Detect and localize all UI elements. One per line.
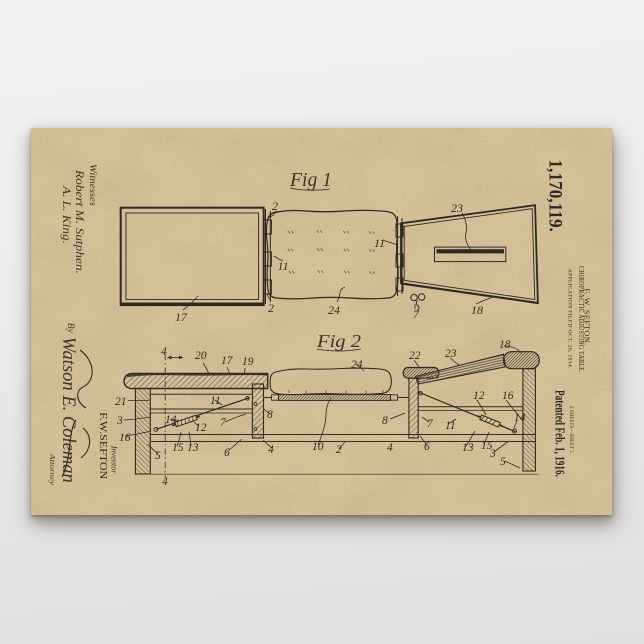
svg-text:20: 20	[195, 350, 207, 362]
svg-text:6: 6	[224, 447, 230, 459]
svg-text:3: 3	[116, 415, 123, 427]
svg-text:Fig 1: Fig 1	[289, 169, 332, 191]
svg-text:4: 4	[162, 476, 168, 488]
svg-text:11: 11	[278, 259, 289, 273]
svg-text:23: 23	[451, 201, 463, 215]
svg-text:7: 7	[413, 307, 420, 321]
svg-text:2: 2	[336, 444, 342, 456]
svg-text:17: 17	[221, 355, 234, 367]
svg-text:19: 19	[242, 356, 254, 368]
svg-text:Patented Feb. 1, 1916.: Patented Feb. 1, 1916.	[553, 390, 568, 477]
svg-text:22: 22	[409, 350, 421, 362]
svg-text:13: 13	[462, 442, 474, 454]
svg-text:16: 16	[119, 432, 131, 444]
svg-text:24: 24	[328, 303, 340, 317]
svg-text:Inventor: Inventor	[109, 445, 119, 475]
svg-text:14: 14	[514, 412, 526, 424]
svg-text:12: 12	[195, 422, 207, 434]
svg-text:CHIROPRACTIC ADJUSTING TABLE.: CHIROPRACTIC ADJUSTING TABLE.	[577, 266, 585, 373]
svg-text:12: 12	[473, 390, 485, 402]
svg-text:10: 10	[312, 441, 324, 453]
svg-text:8: 8	[382, 415, 388, 427]
svg-text:1,170,119.: 1,170,119.	[545, 160, 566, 233]
svg-text:By: By	[65, 323, 75, 334]
svg-text:4: 4	[161, 346, 167, 358]
svg-text:Watson E. Coleman: Watson E. Coleman	[58, 337, 79, 483]
svg-text:3: 3	[489, 448, 496, 460]
svg-text:2: 2	[268, 301, 274, 315]
svg-text:Witnesses: Witnesses	[87, 164, 97, 206]
svg-text:17: 17	[175, 310, 188, 324]
svg-text:11: 11	[374, 236, 385, 250]
svg-text:F.W.SEFTON: F.W.SEFTON	[97, 412, 108, 479]
svg-text:4: 4	[387, 442, 393, 454]
svg-text:APPLICATION FILED OCT. 26, 191: APPLICATION FILED OCT. 26, 1914.	[566, 269, 572, 369]
svg-text:5: 5	[500, 456, 506, 468]
svg-text:11: 11	[445, 420, 456, 432]
svg-text:Fig 2: Fig 2	[316, 331, 361, 351]
svg-text:18: 18	[499, 339, 511, 351]
svg-text:18: 18	[471, 303, 483, 317]
svg-text:Robert M. Sutphen.: Robert M. Sutphen.	[73, 169, 87, 274]
svg-text:2: 2	[272, 199, 278, 213]
svg-text:11: 11	[210, 395, 221, 407]
svg-text:Attorney: Attorney	[48, 453, 57, 486]
svg-text:16: 16	[502, 390, 514, 402]
svg-text:A. L. King.: A. L. King.	[60, 185, 74, 244]
svg-text:13: 13	[187, 442, 199, 454]
svg-text:2 SHEETS—SHEET 1.: 2 SHEETS—SHEET 1.	[568, 406, 573, 454]
svg-text:8: 8	[267, 409, 273, 421]
svg-text:21: 21	[115, 396, 127, 408]
